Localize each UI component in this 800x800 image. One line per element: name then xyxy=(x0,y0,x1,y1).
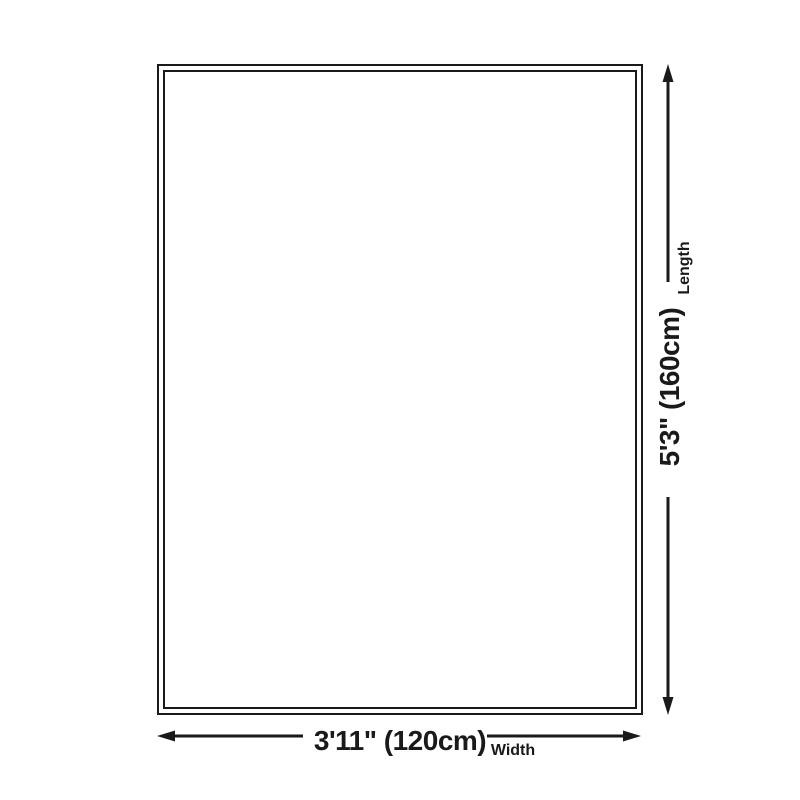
arrow-down-icon xyxy=(663,697,674,715)
length-dimension-label: Length xyxy=(676,241,694,294)
product-outline xyxy=(157,64,643,715)
width-dimension-label: Width xyxy=(491,742,535,760)
product-outline-inner-border xyxy=(163,70,637,709)
arrow-left-icon xyxy=(157,731,175,742)
arrow-up-icon xyxy=(663,64,674,82)
length-dimension-value: 5'3" (160cm) xyxy=(654,308,686,467)
size-diagram: 3'11" (120cm) Width 5'3" (160cm) Length xyxy=(0,0,800,800)
arrow-right-icon xyxy=(623,731,641,742)
width-dimension-value: 3'11" (120cm) xyxy=(314,725,486,757)
